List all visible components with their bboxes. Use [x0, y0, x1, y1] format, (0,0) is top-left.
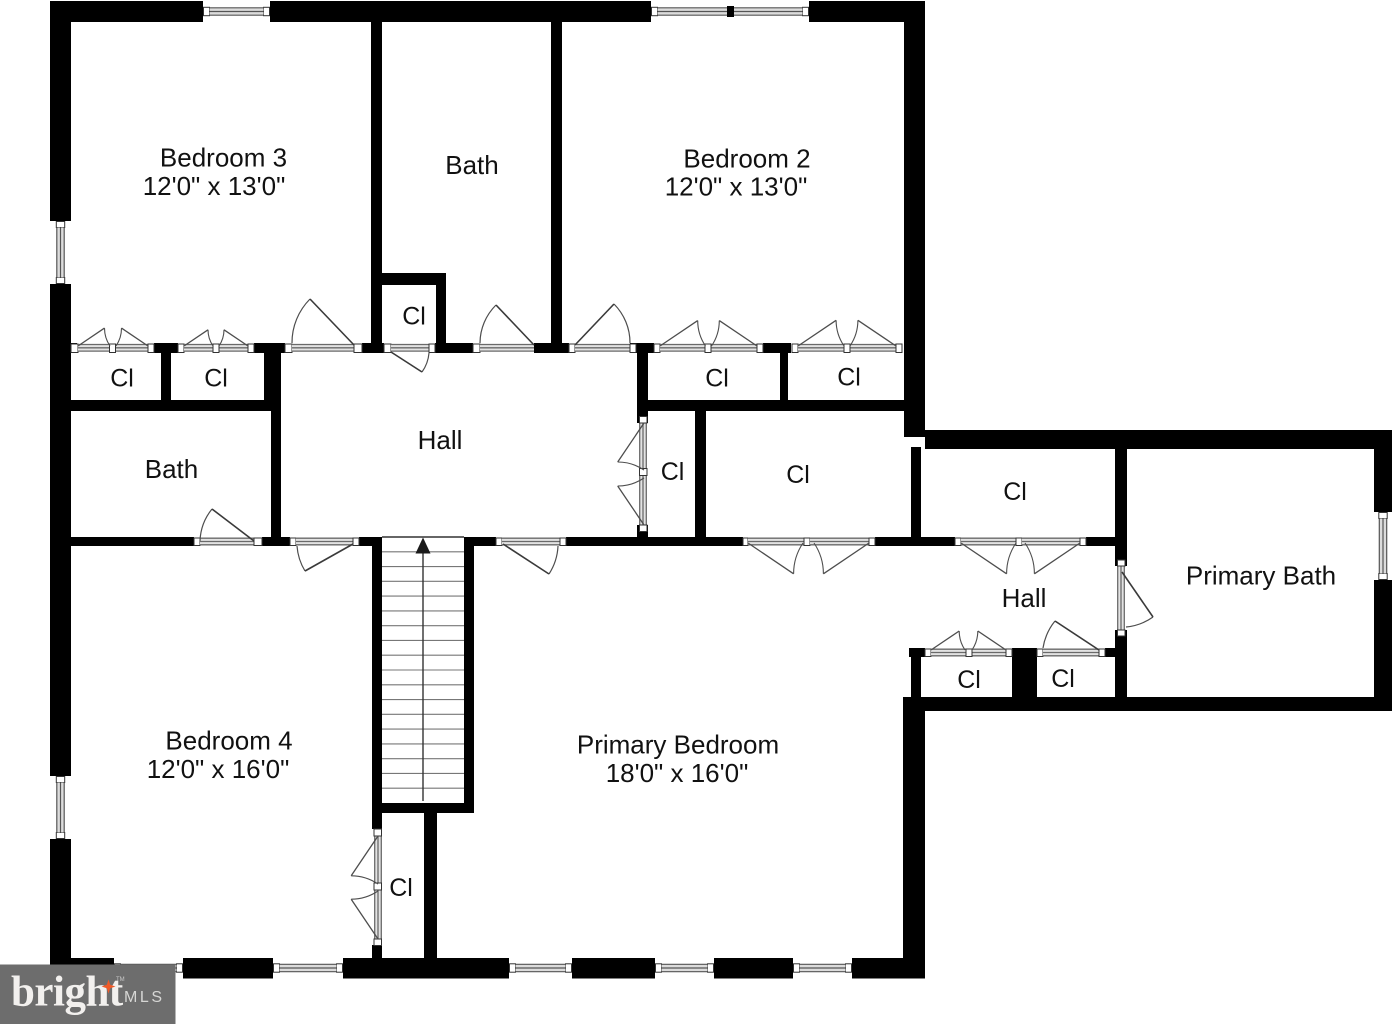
- svg-text:Bedroom 4: Bedroom 4: [165, 726, 292, 756]
- svg-text:Primary Bedroom: Primary Bedroom: [577, 730, 779, 760]
- svg-text:12'0" x 16'0": 12'0" x 16'0": [147, 754, 290, 784]
- svg-text:Bedroom 2: Bedroom 2: [683, 144, 810, 174]
- svg-text:Hall: Hall: [418, 425, 463, 455]
- svg-text:Cl: Cl: [204, 365, 228, 393]
- svg-text:Cl: Cl: [1051, 665, 1075, 693]
- svg-text:Hall: Hall: [1002, 583, 1047, 613]
- svg-text:Cl: Cl: [957, 666, 981, 694]
- svg-text:Cl: Cl: [1003, 478, 1027, 506]
- svg-text:Cl: Cl: [837, 364, 861, 392]
- svg-text:Cl: Cl: [402, 303, 426, 331]
- svg-text:Bath: Bath: [445, 150, 499, 180]
- svg-text:12'0" x 13'0": 12'0" x 13'0": [143, 171, 286, 201]
- svg-text:Cl: Cl: [110, 365, 134, 393]
- svg-text:Cl: Cl: [786, 461, 810, 489]
- svg-text:Cl: Cl: [389, 874, 413, 902]
- svg-text:Cl: Cl: [661, 458, 685, 486]
- svg-text:MLS: MLS: [124, 989, 165, 1006]
- svg-text:Bath: Bath: [145, 454, 199, 484]
- svg-text:bright: bright: [11, 969, 124, 1016]
- svg-text:12'0" x 13'0": 12'0" x 13'0": [665, 172, 808, 202]
- svg-text:Primary Bath: Primary Bath: [1186, 561, 1336, 591]
- svg-text:TM: TM: [116, 977, 125, 983]
- svg-text:Bedroom 3: Bedroom 3: [160, 143, 287, 173]
- svg-text:Cl: Cl: [705, 365, 729, 393]
- svg-text:18'0" x 16'0": 18'0" x 16'0": [606, 758, 749, 788]
